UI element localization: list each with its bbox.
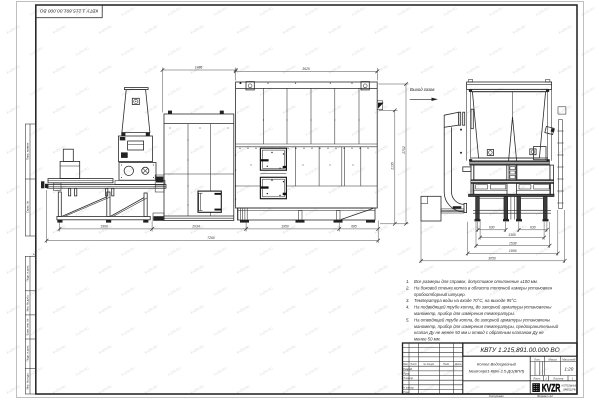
svg-text:Пров.: Пров. bbox=[403, 372, 410, 376]
svg-text:Все размеры для справок, допус: Все размеры для справок, допустимое откл… bbox=[414, 279, 538, 284]
svg-text:На подводящей трубе котла, до: На подводящей трубе котла, до запорной а… bbox=[414, 305, 552, 310]
svg-text:Изм.: Изм. bbox=[403, 362, 409, 366]
svg-text:1:20: 1:20 bbox=[564, 367, 573, 372]
svg-text:КВТУ 1.215.891.00.000 ВО: КВТУ 1.215.891.00.000 ВО bbox=[480, 347, 559, 354]
svg-text:Инв. № дубл.: Инв. № дубл. bbox=[26, 294, 30, 311]
svg-text:пробоотборный штуцер.: пробоотборный штуцер. bbox=[414, 292, 466, 297]
svg-text:685: 685 bbox=[351, 225, 357, 229]
svg-text:4.: 4. bbox=[406, 305, 410, 310]
svg-text:2702: 2702 bbox=[402, 146, 406, 155]
svg-text:Подп.: Подп. bbox=[443, 362, 450, 366]
svg-text:Копировал: Копировал bbox=[489, 394, 504, 398]
svg-text:1960: 1960 bbox=[100, 225, 108, 229]
svg-text:манометр, прибор для измерения: манометр, прибор для измерения температу… bbox=[414, 324, 559, 329]
svg-text:Разраб.: Разраб. bbox=[403, 367, 413, 371]
svg-text:Справ. №: Справ. № bbox=[26, 201, 30, 213]
svg-text:Масштаб: Масштаб bbox=[562, 357, 575, 361]
svg-text:ЗАВОД РФ: ЗАВОД РФ bbox=[563, 388, 576, 391]
svg-text:3050: 3050 bbox=[488, 257, 496, 261]
svg-text:7260: 7260 bbox=[207, 236, 215, 240]
svg-text:А: А bbox=[33, 253, 35, 257]
svg-text:манометр, прибор для измерения: манометр, прибор для измерения температу… bbox=[414, 311, 515, 316]
svg-text:1538: 1538 bbox=[509, 241, 517, 245]
svg-text:1360: 1360 bbox=[508, 233, 516, 237]
svg-text:Лист: Лист bbox=[409, 362, 418, 366]
svg-text:3625: 3625 bbox=[302, 67, 310, 71]
svg-text:Лит.: Лит. bbox=[533, 357, 541, 361]
svg-text:2034: 2034 bbox=[191, 225, 200, 229]
svg-text:Температура воды на входе 70°С: Температура воды на входе 70°С, на выход… bbox=[414, 298, 517, 303]
svg-text:630: 630 bbox=[489, 226, 495, 230]
svg-text:Формат А2: Формат А2 bbox=[537, 394, 553, 398]
svg-text:Подп. и дата: Подп. и дата bbox=[26, 265, 30, 281]
svg-text:менее 50 мм.: менее 50 мм. bbox=[414, 337, 441, 342]
svg-text:3.: 3. bbox=[406, 298, 410, 303]
svg-text:КВТУ 1.215.891.00.000 ВО: КВТУ 1.215.891.00.000 ВО bbox=[39, 8, 98, 14]
svg-text:Взам. инв. №: Взам. инв. № bbox=[26, 319, 30, 336]
svg-text:Инв. № подл.: Инв. № подл. bbox=[26, 372, 30, 389]
svg-text:Котел Водогрейный: Котел Водогрейный bbox=[477, 362, 516, 367]
svg-text:Масса: Масса bbox=[548, 357, 557, 361]
svg-text:Neutronjet1-КВт-2,5-ДО(ВПЛ): Neutronjet1-КВт-2,5-ДО(ВПЛ) bbox=[469, 368, 525, 373]
svg-text:Утв.: Утв. bbox=[403, 390, 409, 394]
svg-text:№ докум.: № докум. bbox=[423, 362, 435, 366]
svg-text:630: 630 bbox=[530, 226, 536, 230]
svg-text:2.: 2. bbox=[405, 285, 410, 290]
svg-text:Перв. примен.: Перв. примен. bbox=[26, 142, 30, 160]
svg-text:1950: 1950 bbox=[281, 225, 289, 229]
svg-text:1.: 1. bbox=[406, 279, 410, 284]
svg-text:Листов: Листов bbox=[552, 377, 564, 381]
svg-text:1906: 1906 bbox=[509, 249, 517, 253]
svg-text:Дата: Дата bbox=[454, 362, 462, 366]
svg-text:KVZR: KVZR bbox=[542, 382, 561, 394]
svg-text:5.: 5. bbox=[406, 317, 410, 322]
svg-text:клапан Ду не менее 50 мм и отв: клапан Ду не менее 50 мм и отвод с обрат… bbox=[414, 330, 544, 335]
svg-text:Выход газов: Выход газов bbox=[410, 87, 435, 92]
svg-text:1486: 1486 bbox=[195, 66, 203, 70]
svg-text:2135: 2135 bbox=[391, 162, 395, 171]
svg-text:КОТЕЛЬНЫЙ: КОТЕЛЬНЫЙ bbox=[562, 385, 578, 388]
svg-text:На отводящей трубе котла, до з: На отводящей трубе котла, до запорной ар… bbox=[414, 317, 551, 322]
svg-text:На боковой стенке котла в обла: На боковой стенке котла в области топочн… bbox=[414, 285, 553, 290]
svg-text:Т.контр.: Т.контр. bbox=[403, 376, 414, 380]
svg-text:Н.контр.: Н.контр. bbox=[403, 385, 414, 389]
svg-text:Лист: Лист bbox=[532, 377, 541, 381]
svg-text:Подп. и дата: Подп. и дата bbox=[26, 345, 30, 361]
